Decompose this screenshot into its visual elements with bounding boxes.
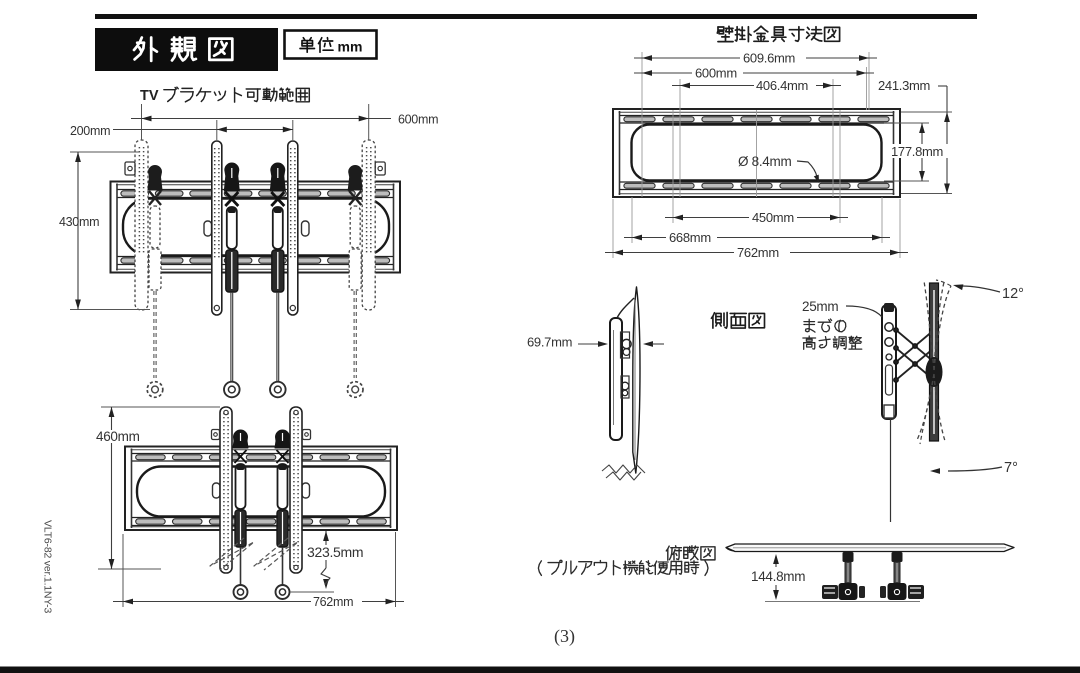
svg-text:323.5mm: 323.5mm xyxy=(307,544,363,560)
svg-text:460mm: 460mm xyxy=(96,429,140,444)
svg-text:600mm: 600mm xyxy=(398,113,438,127)
svg-text:12°: 12° xyxy=(1002,286,1024,302)
svg-text:600mm: 600mm xyxy=(695,66,737,81)
svg-text:144.8mm: 144.8mm xyxy=(751,569,805,584)
svg-text:mm: mm xyxy=(338,39,363,55)
svg-text:430mm: 430mm xyxy=(59,215,99,229)
svg-text:7°: 7° xyxy=(1004,460,1018,476)
svg-text:668mm: 668mm xyxy=(669,230,711,245)
svg-text:241.3mm: 241.3mm xyxy=(878,78,930,93)
svg-text:406.4mm: 406.4mm xyxy=(756,78,808,93)
svg-text:TV: TV xyxy=(140,88,159,104)
svg-text:762mm: 762mm xyxy=(313,595,353,609)
svg-text:69.7mm: 69.7mm xyxy=(527,335,572,350)
svg-text:762mm: 762mm xyxy=(737,245,779,260)
svg-text:450mm: 450mm xyxy=(752,210,794,225)
svg-text:25mm: 25mm xyxy=(802,299,838,314)
svg-text:Ø 8.4mm: Ø 8.4mm xyxy=(738,154,791,169)
svg-text:VLT6-82 ver.1.1NY-3: VLT6-82 ver.1.1NY-3 xyxy=(42,520,54,613)
svg-text:200mm: 200mm xyxy=(70,124,110,138)
svg-text:177.8mm: 177.8mm xyxy=(891,144,943,159)
svg-text:(3): (3) xyxy=(554,626,575,647)
svg-text:609.6mm: 609.6mm xyxy=(743,51,795,66)
